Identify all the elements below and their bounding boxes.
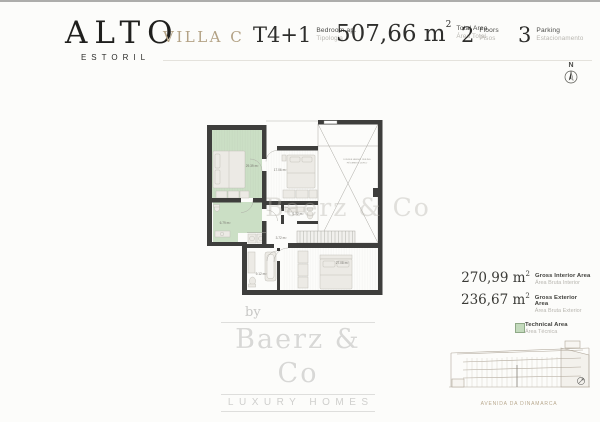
spec-parking-value: 3 <box>518 25 531 46</box>
label-bedroom-lower: 27.08 m² <box>336 261 349 265</box>
spec-parking-label-en: Parking <box>536 27 583 34</box>
spec-typology-value: T4+1 <box>253 25 311 46</box>
spec-floors-value: 2 <box>461 25 474 46</box>
floor-plan: 29.39 m² 17.06 m² 1.72 m² 3.72 m² 9.12 m… <box>185 103 400 300</box>
label-bathroom: 9.12 m² <box>256 272 267 276</box>
technical-area-label-en: Technical Area <box>525 322 568 328</box>
spec-floors-label-en: Floors <box>479 27 499 34</box>
void-label: DOUBLE HEIGHT CEILING PÉ DIREITO DUPLO <box>343 159 370 165</box>
brand-name: ALTO <box>58 16 168 50</box>
double-height-void <box>318 124 378 243</box>
north-compass-icon: N <box>560 62 582 90</box>
technical-area-swatch <box>515 323 525 333</box>
footer-rule-mid <box>221 394 375 395</box>
gross-exterior-area-row: 236,67 m2 Gross Exterior Area Área Bruta… <box>452 294 592 314</box>
brand-logo: ALTO ESTORIL <box>58 16 168 62</box>
staircase <box>297 231 355 243</box>
gross-interior-area-label-pt: Área Bruta Interior <box>535 280 590 286</box>
label-bathroom-green: 6.79 m² <box>220 221 231 225</box>
compass-north-label: N <box>560 62 582 69</box>
label-bedroom-main: 29.39 m² <box>246 164 259 168</box>
gross-interior-area-value: 270,99 m <box>461 270 525 286</box>
spec-total-area-value: 507,66 m <box>336 21 446 47</box>
elevation-caption: AVENIDA DA DINAMARCA <box>443 401 595 407</box>
brochure-page: ALTO ESTORIL VILLA C T4+1 Bedroom ap. Ti… <box>0 0 600 422</box>
footer-logo: by Baerz & Co LUXURY HOMES <box>221 306 375 412</box>
footer-tagline: LUXURY HOMES <box>221 397 375 408</box>
label-wc: 1.72 m² <box>293 212 304 216</box>
label-bedroom-middle: 17.06 m² <box>274 168 287 172</box>
top-edge-strip <box>0 0 600 2</box>
footer-by: by <box>221 306 375 319</box>
gross-interior-area-label-en: Gross Interior Area <box>535 273 590 279</box>
svg-text:PÉ DIREITO DUPLO: PÉ DIREITO DUPLO <box>347 162 368 165</box>
header-divider <box>163 60 592 61</box>
building-elevation <box>443 335 595 399</box>
label-hall: 3.72 m² <box>276 236 287 240</box>
footer-brand-name: Baerz & Co <box>221 323 375 391</box>
footer-rule-bottom <box>221 411 375 412</box>
technical-area-legend: Technical Area Área Técnica <box>515 322 592 335</box>
brand-subtitle: ESTORIL <box>58 53 168 62</box>
spec-total-area-sup: 2 <box>446 20 452 30</box>
spec-parking: 3 Parking Estacionamento <box>518 25 584 46</box>
areas-panel: 270,99 m2 Gross Interior Area Área Bruta… <box>452 272 592 335</box>
spec-floors-label-pt: Pisos <box>479 35 499 42</box>
spec-floors: 2 Floors Pisos <box>461 25 499 46</box>
svg-text:DOUBLE HEIGHT CEILING: DOUBLE HEIGHT CEILING <box>343 159 370 161</box>
spec-parking-label-pt: Estacionamento <box>536 35 583 42</box>
gross-exterior-area-value: 236,67 m <box>461 292 525 308</box>
villa-name: VILLA C <box>163 28 244 46</box>
gross-exterior-area-label-pt: Área Bruta Exterior <box>535 308 592 314</box>
compass-needle-icon <box>563 69 579 85</box>
gross-exterior-area-label-en: Gross Exterior Area <box>535 295 592 307</box>
gross-interior-area-row: 270,99 m2 Gross Interior Area Área Bruta… <box>452 272 592 286</box>
